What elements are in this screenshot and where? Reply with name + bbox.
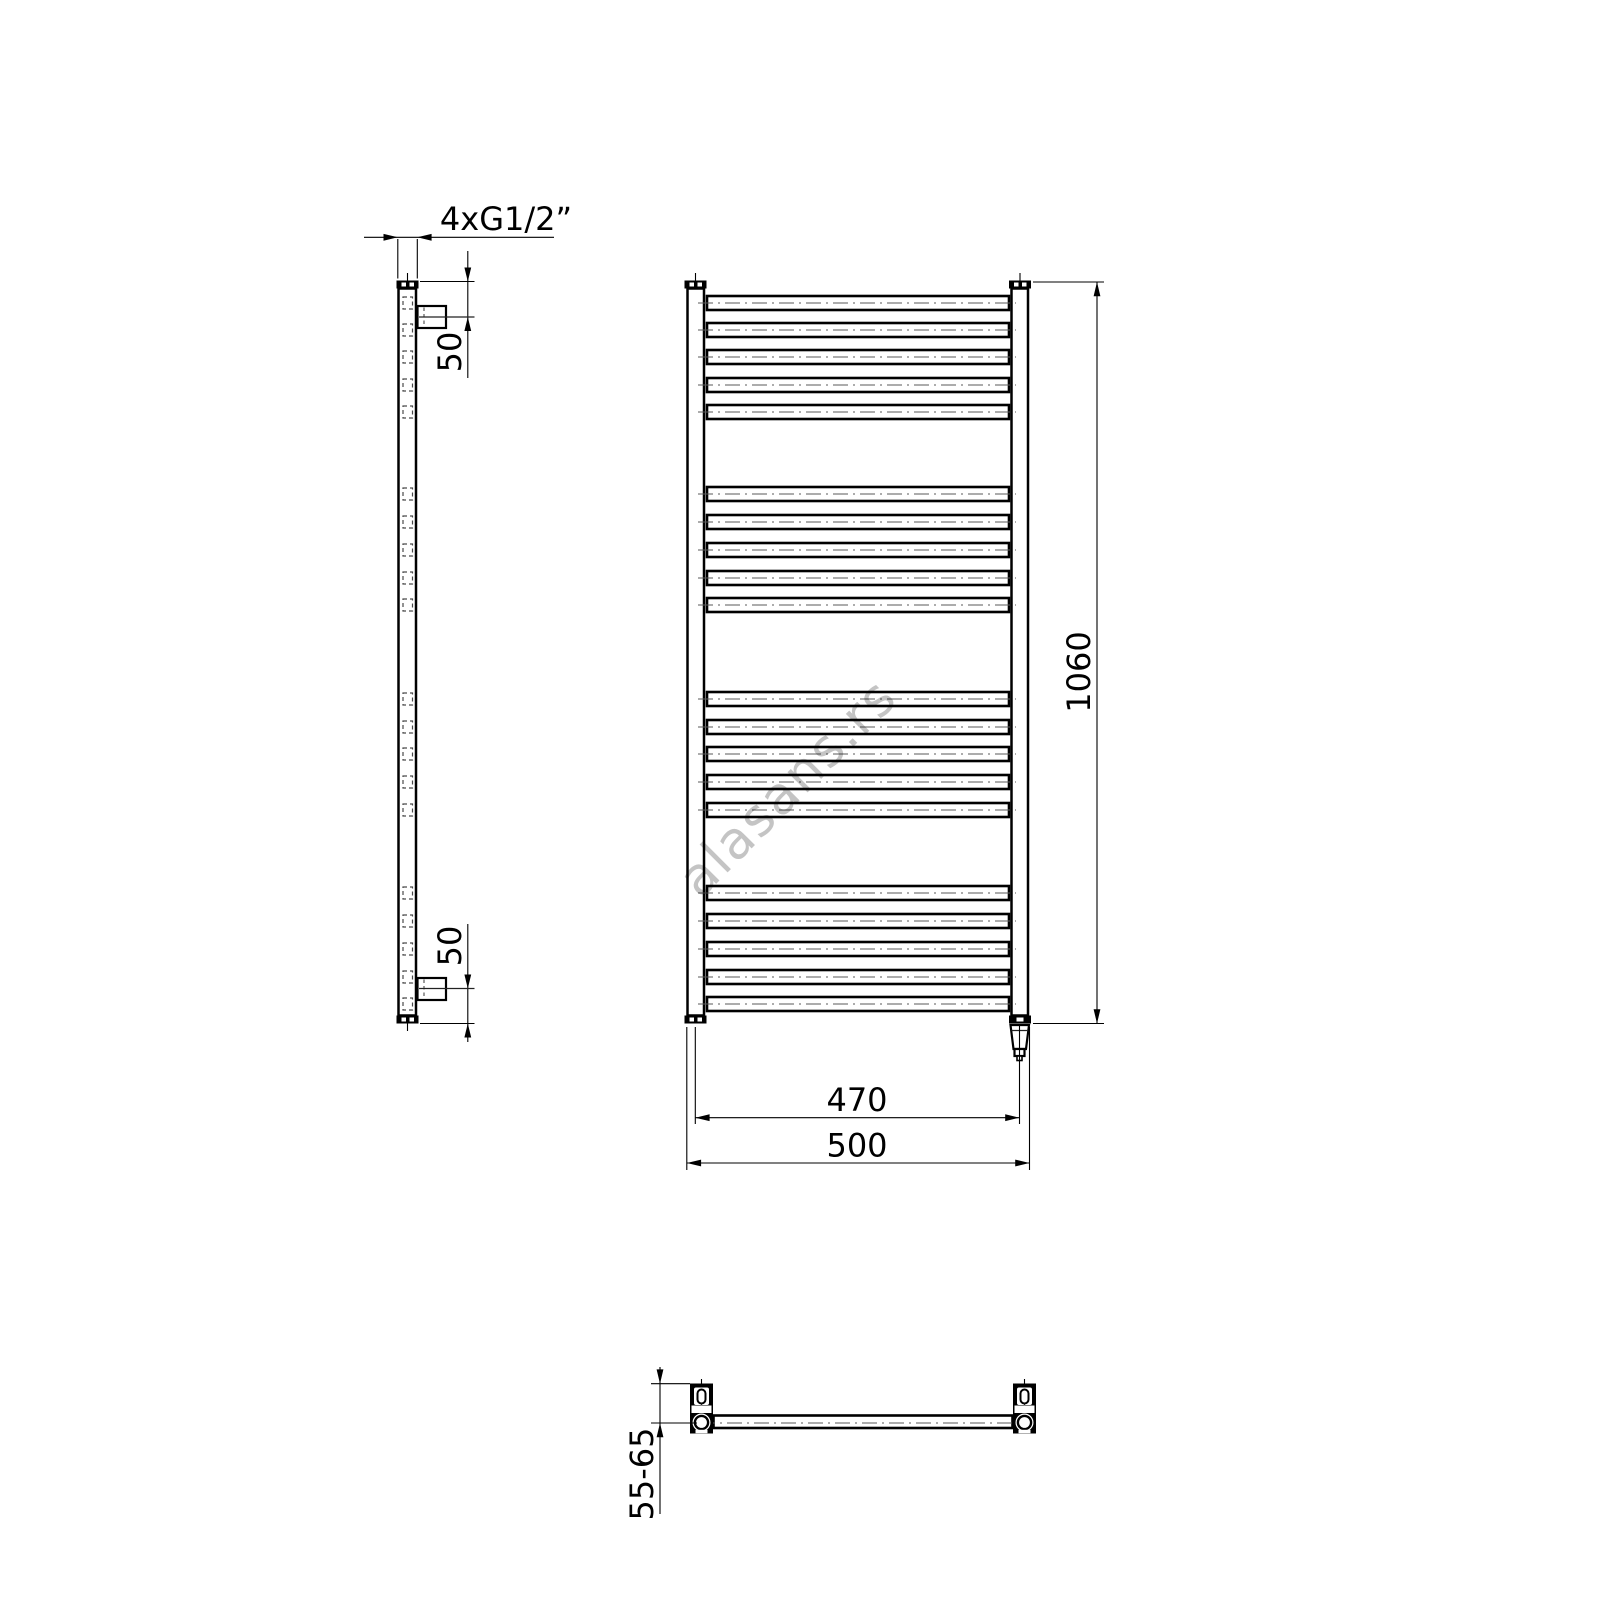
- side-bottom-cap: [397, 1016, 419, 1032]
- side-top-cap: [397, 273, 419, 289]
- label-top-offset: 50: [431, 332, 469, 373]
- label-overall-width: 500: [826, 1127, 887, 1165]
- front-left-column: [688, 289, 705, 1016]
- side-column: [399, 289, 417, 1016]
- label-bottom-offset: 50: [431, 926, 469, 967]
- dim-connection-spacing: 470: [695, 1025, 1019, 1124]
- front-right-column: [1012, 289, 1029, 1016]
- front-left-top-cap: [685, 273, 707, 289]
- top-view: [690, 1379, 1036, 1434]
- dim-wall-clearance: 55-65: [623, 1367, 697, 1520]
- label-connection-thread: 4xG1/2”: [440, 200, 572, 238]
- top-collector-tube: [714, 1416, 1013, 1429]
- label-overall-height: 1060: [1060, 631, 1098, 712]
- wall-bracket-right: [1013, 1379, 1036, 1434]
- side-view: [397, 273, 447, 1031]
- front-right-top-cap: [1009, 273, 1031, 289]
- front-view: [685, 273, 1032, 1061]
- front-tubes: [707, 296, 1009, 1011]
- drawing-canvas: 4xG1/2” 50 50 1060 470: [0, 0, 1600, 1600]
- radiator-technical-drawing: 4xG1/2” 50 50 1060 470: [0, 0, 1600, 1600]
- front-right-bottom-cap: [1009, 1016, 1031, 1024]
- front-left-bottom-cap: [685, 1016, 707, 1024]
- label-connection-spacing: 470: [826, 1081, 887, 1119]
- wall-bracket-left: [690, 1379, 713, 1434]
- dim-height: 1060: [1033, 282, 1104, 1024]
- label-wall-clearance: 55-65: [623, 1428, 661, 1521]
